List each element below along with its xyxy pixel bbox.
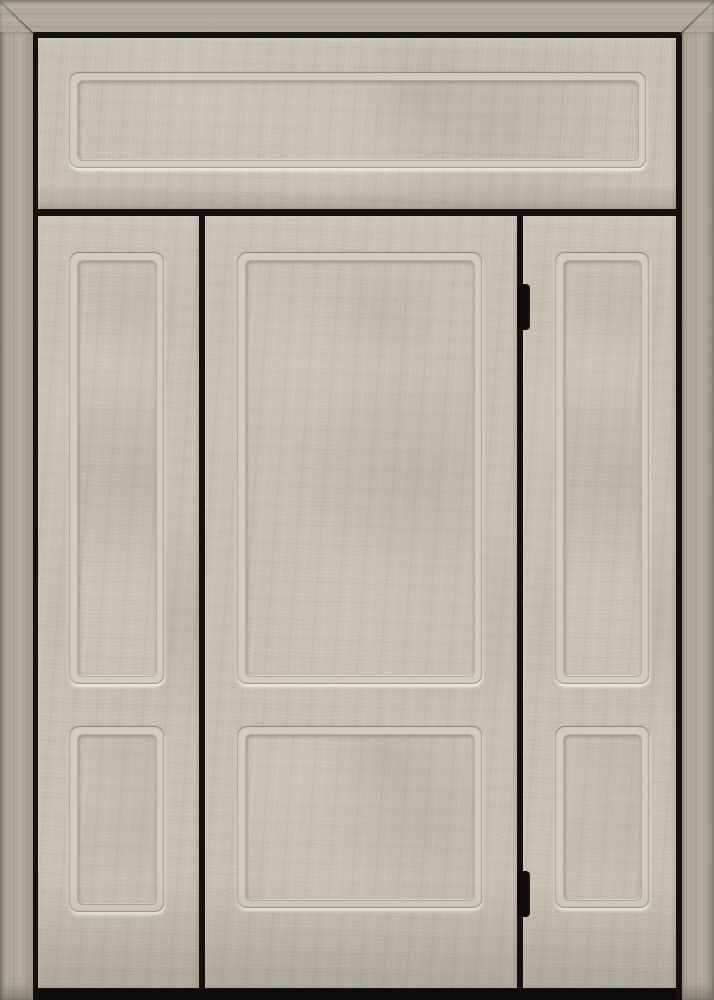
left-sidelight-lower-panel	[70, 727, 164, 912]
frame-left	[0, 32, 33, 1000]
door-lower-panel	[238, 727, 482, 908]
door-hinge-top-icon	[517, 284, 530, 330]
left-sidelight-upper-recess	[78, 261, 156, 676]
door-product-photo	[0, 0, 714, 1000]
right-sidelight-upper-panel	[556, 253, 649, 684]
transom-panel-recess	[78, 81, 638, 160]
right-sidelight-upper-recess	[564, 261, 641, 676]
threshold	[38, 988, 676, 1000]
left-sidelight-lower-recess	[78, 735, 156, 904]
left-sidelight	[38, 216, 199, 988]
frame-top	[0, 0, 714, 32]
door-upper-panel	[238, 253, 482, 684]
right-sidelight	[523, 216, 676, 988]
frame-right	[682, 32, 714, 1000]
right-sidelight-lower-recess	[564, 735, 641, 900]
door-upper-recess	[246, 261, 474, 676]
door-slab	[205, 216, 517, 988]
transom-recessed-panel	[70, 73, 646, 168]
door-hinge-bottom-icon	[517, 871, 530, 917]
door-lower-recess	[246, 735, 474, 900]
right-sidelight-lower-panel	[556, 727, 649, 908]
left-sidelight-upper-panel	[70, 253, 164, 684]
transom	[38, 38, 676, 209]
